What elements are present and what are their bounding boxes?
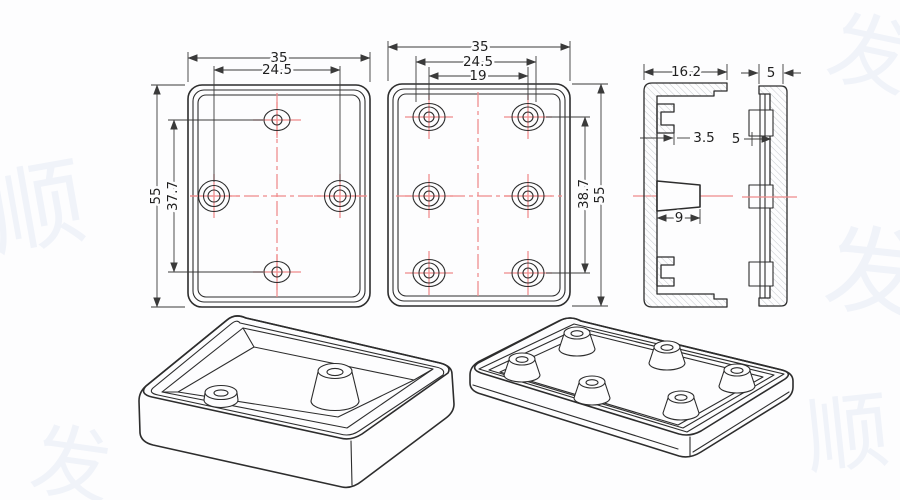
view-cover-section: 5 5 <box>732 64 801 306</box>
watermark-glyph: 发 <box>819 213 900 334</box>
iso-cover-boss <box>649 341 685 370</box>
enclosure-drawing: 顺 发 发 发 顺 35 <box>0 0 900 500</box>
iso-base-screw-boss-tall <box>311 364 359 411</box>
view-base-inside: 35 24.5 19 38.7 55 <box>388 39 608 306</box>
iso-cover-boss <box>504 353 540 382</box>
section-screw-boss <box>657 181 700 211</box>
iso-cover-boss <box>719 364 755 393</box>
iso-cover-boss <box>663 391 699 420</box>
view-cover-outside: 35 24.5 55 37.7 <box>148 50 370 307</box>
dim-label-base-width: 35 <box>471 39 488 55</box>
dim-label-cover-section-width: 5 <box>767 65 776 81</box>
dim-label-base-hole-vspan: 38.7 <box>576 179 592 209</box>
dim-label-section-boss-width: 9 <box>675 210 684 226</box>
dim-label-cover-height: 55 <box>148 187 164 204</box>
dim-section-depth: 16.2 <box>644 64 727 80</box>
iso-view-cover <box>470 318 793 457</box>
dim-label-cover-lip: 5 <box>732 131 741 147</box>
dim-label-base-height: 55 <box>592 186 608 203</box>
watermark-glyph: 顺 <box>800 381 894 487</box>
cover-section-boss-bottom <box>749 262 773 286</box>
view-base-section: 16.2 3.5 9 <box>633 64 733 307</box>
iso-view-base <box>139 316 454 487</box>
technical-drawing-canvas: 顺 发 发 发 顺 35 <box>0 0 900 500</box>
cover-section-boss-top <box>749 110 773 136</box>
dim-cover-section-width: 5 <box>741 64 801 84</box>
iso-base-screw-boss-short <box>204 386 238 408</box>
dim-label-section-depth: 16.2 <box>671 64 701 80</box>
watermark-glyph: 发 <box>819 0 900 110</box>
watermark-glyph: 发 <box>25 413 117 500</box>
iso-cover-boss <box>559 327 595 356</box>
iso-cover-boss <box>574 376 610 405</box>
dim-label-base-hole-span: 19 <box>469 68 486 84</box>
dim-label-section-rib: 3.5 <box>693 130 714 146</box>
dim-label-cover-hole-vspan: 37.7 <box>165 181 181 211</box>
dim-label-cover-hole-span: 24.5 <box>262 62 292 78</box>
watermark-glyph: 顺 <box>0 145 94 272</box>
